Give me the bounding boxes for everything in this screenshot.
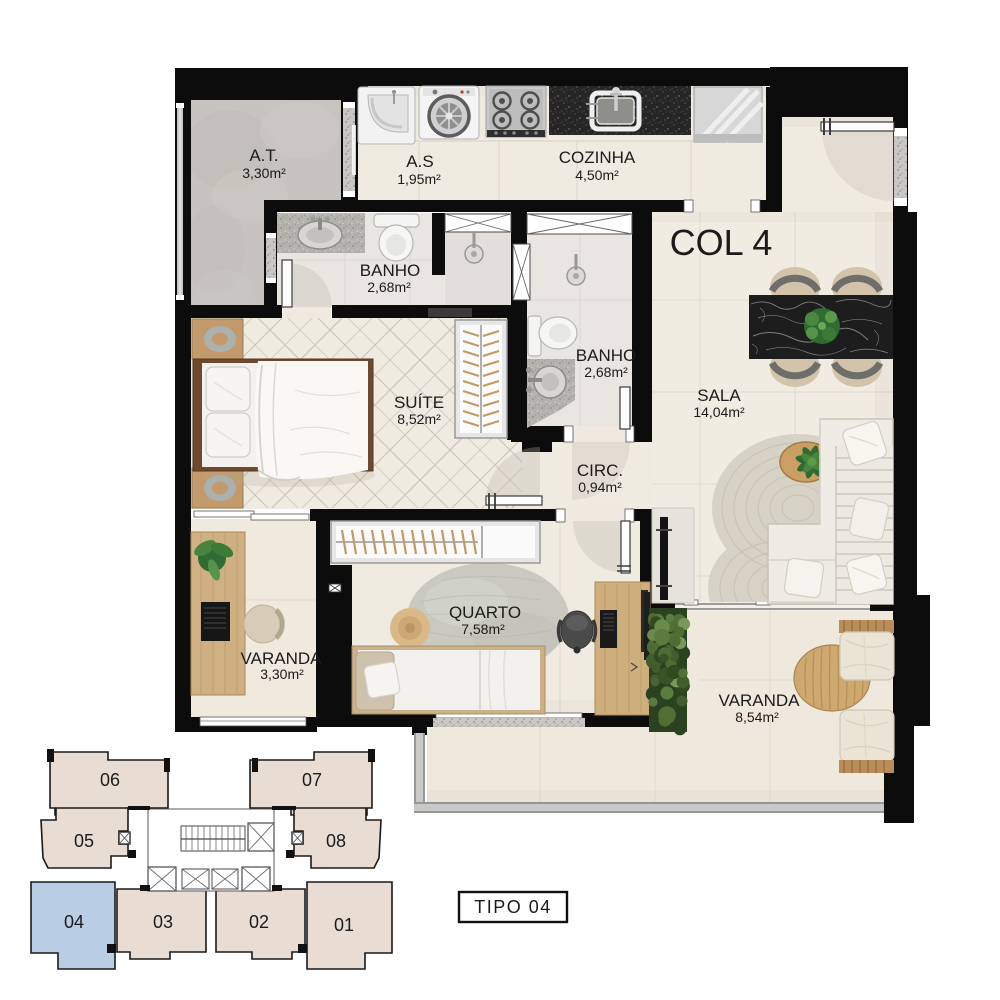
svg-text:05: 05: [74, 831, 94, 851]
svg-text:1,95m²: 1,95m²: [397, 171, 441, 187]
svg-text:BANHO: BANHO: [576, 346, 636, 365]
svg-text:SALA: SALA: [697, 386, 741, 405]
svg-text:VARANDA: VARANDA: [719, 691, 801, 710]
svg-text:A.S: A.S: [406, 152, 433, 171]
svg-text:2,68m²: 2,68m²: [584, 364, 628, 380]
svg-text:8,52m²: 8,52m²: [397, 411, 441, 427]
svg-text:3,30m²: 3,30m²: [242, 165, 286, 181]
svg-text:BANHO: BANHO: [360, 261, 420, 280]
svg-text:01: 01: [334, 915, 354, 935]
svg-text:07: 07: [302, 770, 322, 790]
svg-text:CIRC.: CIRC.: [577, 461, 623, 480]
svg-text:08: 08: [326, 831, 346, 851]
svg-text:3,30m²: 3,30m²: [260, 666, 304, 682]
svg-text:QUARTO: QUARTO: [449, 603, 521, 622]
svg-text:14,04m²: 14,04m²: [693, 404, 745, 420]
svg-text:4,50m²: 4,50m²: [575, 167, 619, 183]
svg-text:03: 03: [153, 912, 173, 932]
svg-text:SUÍTE: SUÍTE: [394, 393, 444, 412]
svg-text:0,94m²: 0,94m²: [578, 479, 622, 495]
svg-text:7,58m²: 7,58m²: [461, 621, 505, 637]
svg-text:06: 06: [100, 770, 120, 790]
svg-text:8,54m²: 8,54m²: [735, 709, 779, 725]
svg-text:02: 02: [249, 912, 269, 932]
svg-text:TIPO 04: TIPO 04: [474, 897, 552, 917]
svg-text:04: 04: [64, 912, 84, 932]
svg-text:COL 4: COL 4: [670, 222, 773, 263]
svg-text:COZINHA: COZINHA: [559, 148, 636, 167]
svg-text:2,68m²: 2,68m²: [367, 279, 411, 295]
svg-text:A.T.: A.T.: [249, 146, 278, 165]
